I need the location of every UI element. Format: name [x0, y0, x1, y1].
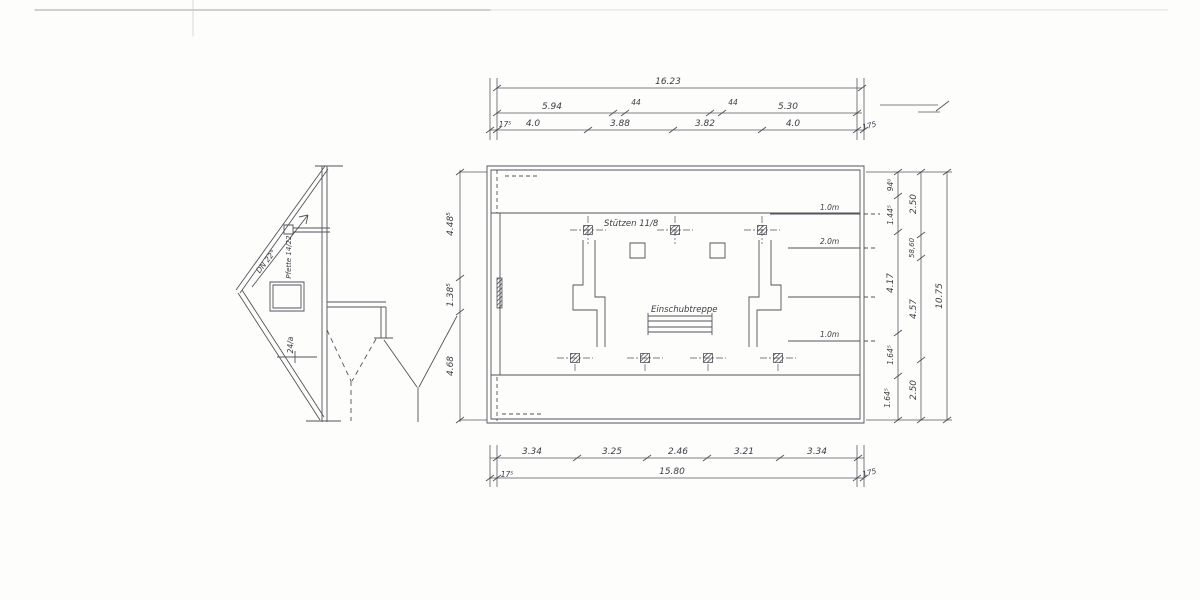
- bottom-dimension-chain: 3.34 3.25 2.46 3.21 3.34 15.80 17⁵ 175: [486, 445, 878, 487]
- dim-right-inner-4: 1.64⁵: [883, 388, 892, 408]
- loft-ladder-outline: [648, 313, 712, 335]
- dim-bottom-1: 3.25: [602, 447, 622, 457]
- column-axis-lines: [557, 216, 796, 372]
- dim-top-r3-3: 3.82: [695, 119, 715, 129]
- dim-bottom-3: 3.21: [734, 447, 754, 457]
- height-mark-1: 1.0m: [820, 203, 839, 212]
- column-symbol: [571, 354, 580, 363]
- scan-artifacts: [35, 0, 1168, 36]
- roof-pitch-label: DN 22°: [254, 248, 278, 275]
- dim-top-r3-0: 17⁵: [499, 120, 512, 129]
- roof-section-view: DN 22° Pfette 14/22 24/a: [236, 166, 457, 422]
- dim-right-inner-0: 94⁰: [886, 179, 895, 192]
- column-symbol: [758, 226, 767, 235]
- height-mark-3: 1.0m: [820, 330, 839, 339]
- dim-left-2: 4.68: [446, 356, 456, 376]
- dim-right-mid-2: 4.57: [909, 299, 919, 319]
- column-symbols: [497, 226, 783, 363]
- rafter-label: 24/a: [286, 336, 295, 353]
- purlin-label: Pfette 14/22: [285, 235, 293, 279]
- section-dashed-braces: [327, 330, 376, 421]
- loft-ladder-label: Einschubtreppe: [651, 305, 717, 315]
- dim-left-0: 4.48⁵: [446, 212, 456, 236]
- dim-right-inner-2: 4.17: [886, 273, 896, 293]
- dim-right-mid-0: 2.50: [909, 194, 919, 214]
- dim-right-inner-3: 1.64⁵: [886, 345, 895, 365]
- dim-right-mid-3: 2.50: [909, 380, 919, 400]
- plan-walls: [487, 166, 864, 423]
- dim-right-outer: 10.75: [935, 283, 945, 309]
- blueprint-canvas: DN 22° Pfette 14/22 24/a 16.23 5.94 44 4…: [0, 0, 1200, 600]
- dim-top-r2-0: 5.94: [542, 102, 562, 112]
- dim-left-1: 1.38⁵: [446, 283, 456, 307]
- wall-pier-hatch: [497, 278, 502, 308]
- column-symbol: [774, 354, 783, 363]
- dim-top-r2-2: 44: [728, 98, 738, 107]
- dim-top-r3-4: 4.0: [786, 119, 801, 129]
- dim-bottom-4: 3.34: [807, 447, 827, 457]
- dim-total-width-top: 16.23: [655, 77, 681, 87]
- dim-right-inner-1: 1.44⁵: [886, 205, 895, 225]
- right-dimension-chain: 94⁰ 1.44⁵ 4.17 1.64⁵ 1.64⁵ 2.50 58,60 4.…: [866, 169, 952, 423]
- dim-right-mid-1: 58,60: [908, 237, 916, 258]
- dim-bottom-0: 3.34: [522, 447, 542, 457]
- dim-bottom-2: 2.46: [668, 447, 688, 457]
- dim-top-r3-2: 3.88: [610, 119, 630, 129]
- plan-stepped-beams: [573, 240, 781, 347]
- column-symbol: [704, 354, 713, 363]
- columns-label: Stützen 11/8: [604, 219, 659, 229]
- open-post-squares: [630, 243, 725, 258]
- pitch-arrow: [252, 215, 308, 287]
- column-symbol: [584, 226, 593, 235]
- column-symbol: [641, 354, 650, 363]
- left-dimension-chain: 4.48⁵ 1.38⁵ 4.68: [446, 169, 487, 423]
- floor-plan: Stützen 11/8 Einschubtreppe 1.0m 2.0m 1.…: [487, 166, 880, 423]
- column-symbol: [671, 226, 680, 235]
- height-mark-2: 2.0m: [820, 237, 839, 246]
- dim-bottom-total: 15.80: [659, 467, 685, 477]
- top-dimension-chain: 16.23 5.94 44 44 5.30 17⁵ 4.0 3.88 3.82 …: [486, 77, 949, 140]
- dim-bottom-left-end: 17⁵: [501, 470, 514, 479]
- dim-top-r3-1: 4.0: [526, 119, 541, 129]
- dim-top-r2-1: 44: [631, 98, 641, 107]
- scanned-blueprint-page: DN 22° Pfette 14/22 24/a 16.23 5.94 44 4…: [0, 0, 1200, 600]
- roof-section-lines: [236, 166, 457, 422]
- left-dim-lines: [460, 170, 487, 422]
- dim-top-r2-3: 5.30: [778, 102, 798, 112]
